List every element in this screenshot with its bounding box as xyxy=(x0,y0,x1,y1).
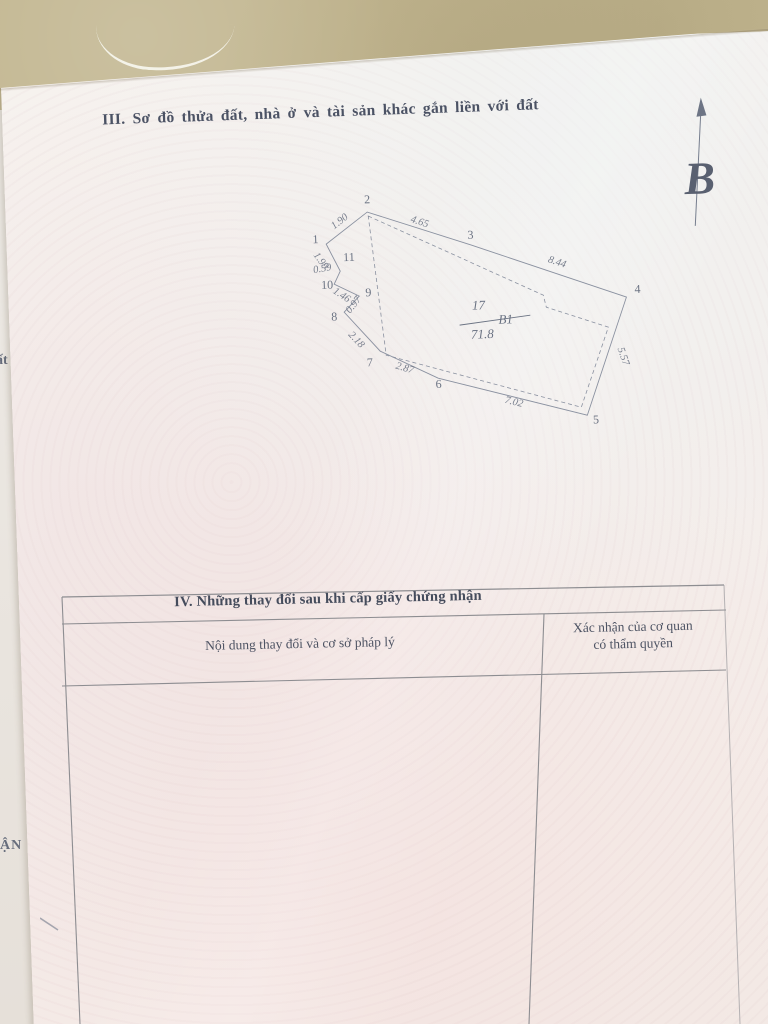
edge-length-1-2: 1.90 xyxy=(329,211,351,231)
vertex-label-2: 2 xyxy=(364,192,370,206)
parcel-boundary xyxy=(325,203,630,424)
plot-diagram: 1 2 3 4 5 6 7 8 9 10 11 1.90 4.65 8.44 5… xyxy=(285,175,664,450)
surface-scratch xyxy=(93,15,234,76)
certificate-photo: ất ẬN III. Sơ đồ thửa đất, nhà ở và tài … xyxy=(0,0,768,1024)
vertex-label-10: 10 xyxy=(321,278,333,292)
vertex-label-4: 4 xyxy=(634,282,640,296)
edge-length-4-5: 5.57 xyxy=(615,346,632,368)
vertex-label-6: 6 xyxy=(435,377,441,391)
edge-length-3-4: 8.44 xyxy=(547,254,569,270)
edge-length-5-6: 7.02 xyxy=(504,395,525,410)
vertex-label-1: 1 xyxy=(312,232,318,246)
edge-length-6-7: 2.87 xyxy=(394,361,415,377)
vertex-label-5: 5 xyxy=(593,412,599,426)
building-outline-dashed xyxy=(368,208,611,415)
vertex-label-11: 11 xyxy=(343,250,355,264)
stray-pen-mark xyxy=(40,918,58,930)
section3-title: III. Sơ đồ thửa đất, nhà ở và tài sản kh… xyxy=(102,96,539,129)
parcel-area: 71.8 xyxy=(471,326,495,342)
vertex-label-7: 7 xyxy=(367,355,373,369)
north-label: B xyxy=(682,152,715,204)
building-label: B1 xyxy=(498,311,513,326)
section4-table: IV. Những thay đổi sau khi cấp giấy chứn… xyxy=(40,580,750,1024)
vertex-label-9: 9 xyxy=(365,285,371,299)
section4-col2-header: Xác nhận của cơ quan có thẩm quyền xyxy=(523,616,744,655)
north-arrow-head xyxy=(696,97,707,116)
fraction-line xyxy=(459,315,530,325)
vertex-label-3: 3 xyxy=(467,228,473,242)
left-page-text-fragment: ất xyxy=(0,353,8,369)
vertex-label-8: 8 xyxy=(331,309,337,323)
left-page-text-fragment: ẬN xyxy=(0,838,22,854)
parcel-number: 17 xyxy=(472,297,486,312)
edge-length-2-3: 4.65 xyxy=(409,214,430,230)
north-arrow: B xyxy=(656,84,751,242)
